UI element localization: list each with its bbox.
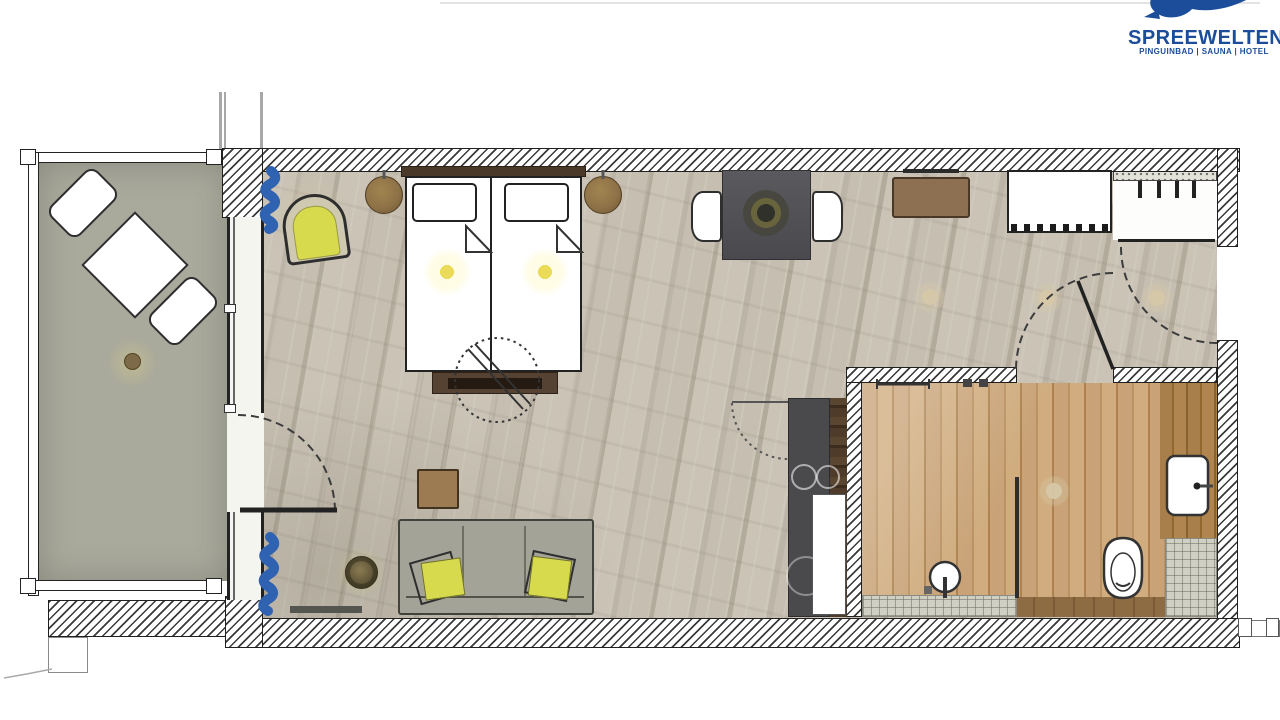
exterior-box <box>48 637 88 673</box>
window-glass-inner <box>233 512 235 600</box>
coat-hook <box>1157 181 1161 198</box>
wall-top <box>222 148 1240 172</box>
dining-chair-right <box>812 191 843 242</box>
railing-post <box>20 578 36 594</box>
bed-center-line <box>490 176 492 372</box>
sofa-cushion <box>421 557 466 600</box>
wall-corner-topleft <box>222 148 263 218</box>
pillow-left <box>412 183 477 222</box>
window-glass-inner <box>233 217 235 413</box>
floor-heater-bar <box>290 606 362 613</box>
wall-bottom <box>225 618 1240 648</box>
railing-post <box>206 578 222 594</box>
entry-niche-floor <box>1113 180 1217 240</box>
nightstand-right <box>584 176 622 214</box>
shower-tiles <box>862 595 1017 617</box>
window-inner-edge <box>261 217 264 413</box>
bathroom-vanity-counter <box>1160 383 1217 539</box>
dining-chair-left <box>691 191 722 242</box>
balcony-railing-top <box>30 152 222 163</box>
bed-bench-cushion <box>448 378 542 389</box>
shower-partition-wall <box>1015 477 1019 598</box>
wall-bathroom-west <box>846 367 862 617</box>
wall-corner-bottomleft <box>225 596 263 648</box>
nightstand-left <box>365 176 403 214</box>
kitchen-shelf-line <box>732 401 788 403</box>
floorplan-page: SPREEWELTEN PINGUINBAD | SAUNA | HOTEL <box>0 0 1280 720</box>
wardrobe-rail <box>1011 224 1108 231</box>
penguin-logo-icon <box>1140 0 1270 30</box>
logo-tagline-text: PINGUINBAD | SAUNA | HOTEL <box>1128 47 1280 56</box>
pillow-right <box>504 183 569 222</box>
neighbor-railing-post <box>1238 618 1252 637</box>
table-bowl <box>743 190 789 236</box>
wall-right-upper <box>1217 148 1238 247</box>
armchair-seat <box>290 203 341 261</box>
kitchen-white-unit <box>812 494 846 615</box>
exterior-wall-line <box>224 92 226 150</box>
neighbor-railing-post <box>1266 618 1279 637</box>
wall-bathroom-north-left <box>846 367 1017 383</box>
coat-hook <box>1175 181 1179 198</box>
exterior-wall-line <box>219 92 222 150</box>
site-boundary-line <box>4 669 52 678</box>
sofa-cushion <box>528 556 573 601</box>
window-mullion <box>224 304 236 313</box>
sideboard <box>892 177 970 218</box>
bathroom-tiles <box>1165 538 1217 617</box>
coat-hook <box>1138 181 1142 198</box>
railing-post <box>20 149 36 165</box>
window-glass-outer <box>227 217 230 413</box>
bathroom-floor-band <box>1015 597 1165 617</box>
wall-bathroom-north-right <box>1113 367 1217 383</box>
side-table <box>417 469 459 509</box>
wall-right-lower <box>1217 340 1238 648</box>
sofa-plant <box>345 556 378 589</box>
niche-bottom-wall-line <box>1118 239 1215 242</box>
balcony-plant <box>124 353 141 370</box>
window-mullion <box>224 404 236 413</box>
balcony-railing-bottom <box>30 580 222 591</box>
window-glass-outer <box>227 512 230 600</box>
coat-hook <box>1192 181 1196 198</box>
exterior-wall-line <box>260 92 263 150</box>
wardrobe <box>1007 170 1112 233</box>
window-inner-edge <box>261 512 264 600</box>
balcony-railing-left <box>28 152 39 596</box>
railing-post <box>206 149 222 165</box>
